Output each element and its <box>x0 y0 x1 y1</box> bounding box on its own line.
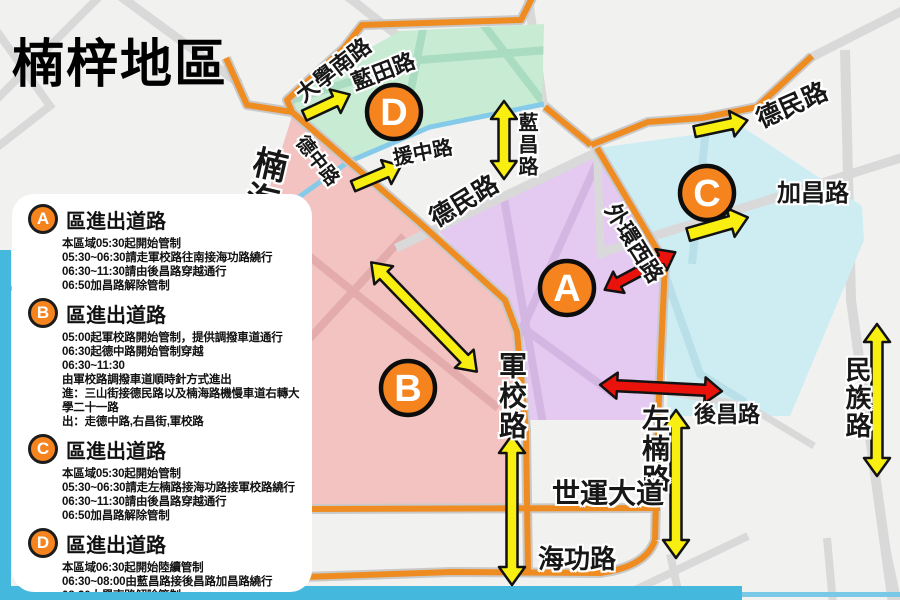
zone-b-badge: B <box>28 298 58 328</box>
waterway-left <box>0 250 11 600</box>
section-d-line: 08:30大學南路解除管制 <box>62 589 300 592</box>
traffic-control-panel: A 區進出道路 本區域05:30起開始管制 05:30~06:30請走軍校路往南… <box>12 194 312 592</box>
section-c-line: 06:30~11:30請由後昌路穿越通行 <box>62 495 300 509</box>
panel-section-c: C 區進出道路 本區域05:30起開始管制 05:30~06:30請走左楠路接海… <box>12 433 306 523</box>
zone-c-badge: C <box>28 434 58 464</box>
section-b-heading: 區進出道路 <box>66 299 166 328</box>
panel-section-d: D 區進出道路 本區域06:30起開始陸續管制 06:30~08:00由藍昌路接… <box>12 527 306 592</box>
section-b-line: 出：走德中路,右昌街,軍校路 <box>62 415 300 429</box>
section-b-line: 由軍校路調撥車道順時針方式進出 <box>62 373 300 387</box>
zone-marker-a-letter: A <box>553 268 580 310</box>
section-b-line: 進：三山街接德民路以及楠海路機慢車道右轉大學二十一路 <box>62 387 300 415</box>
zone-marker-c: C <box>680 166 734 220</box>
section-a-line: 06:50加昌路解除管制 <box>62 279 300 293</box>
section-c-line: 本區域05:30起開始管制 <box>62 467 300 481</box>
zone-marker-a: A <box>540 261 594 315</box>
zone-d-badge: D <box>28 528 58 558</box>
waterway-bottom-thin <box>742 592 900 597</box>
page-title: 楠梓地區 <box>12 22 228 97</box>
arrow-zuonan-two-way <box>663 410 689 558</box>
zone-a-badge: A <box>28 204 58 234</box>
panel-section-b: B 區進出道路 05:00起軍校路開始管制，提供調撥車道通行 06:30起德中路… <box>12 297 306 429</box>
section-a-line: 06:30~11:30請由後昌路穿越通行 <box>62 265 300 279</box>
section-d-line: 本區域06:30起開始陸續管制 <box>62 561 300 575</box>
section-a-heading: 區進出道路 <box>66 205 166 234</box>
section-c-heading: 區進出道路 <box>66 435 166 464</box>
zone-marker-b: B <box>381 361 435 415</box>
zone-marker-d-letter: D <box>380 92 407 134</box>
section-b-line: 06:30~11:30 <box>62 359 300 373</box>
section-c-line: 06:50加昌路解除管制 <box>62 509 300 523</box>
traffic-control-map-page: A B C D 大學南路 藍田路 德中路 援中路 藍昌路 楠海路 德民路 德民路… <box>0 0 900 600</box>
section-a-line: 本區域05:30起開始管制 <box>62 237 300 251</box>
arrow-lanchang-two-way <box>491 101 517 179</box>
panel-section-a: A 區進出道路 本區域05:30起開始管制 05:30~06:30請走軍校路往南… <box>12 203 306 293</box>
zone-marker-d: D <box>367 85 421 139</box>
zone-marker-b-letter: B <box>394 368 421 410</box>
section-c-line: 05:30~06:30請走左楠路接海功路接軍校路繞行 <box>62 481 300 495</box>
zone-marker-c-letter: C <box>693 173 720 215</box>
section-a-line: 05:30~06:30請走軍校路往南接海功路繞行 <box>62 251 300 265</box>
section-d-heading: 區進出道路 <box>66 529 166 558</box>
section-d-line: 06:30~08:00由藍昌路接後昌路加昌路繞行 <box>62 575 300 589</box>
section-b-line: 05:00起軍校路開始管制，提供調撥車道通行 <box>62 331 300 345</box>
section-b-line: 06:30起德中路開始管制穿越 <box>62 345 300 359</box>
